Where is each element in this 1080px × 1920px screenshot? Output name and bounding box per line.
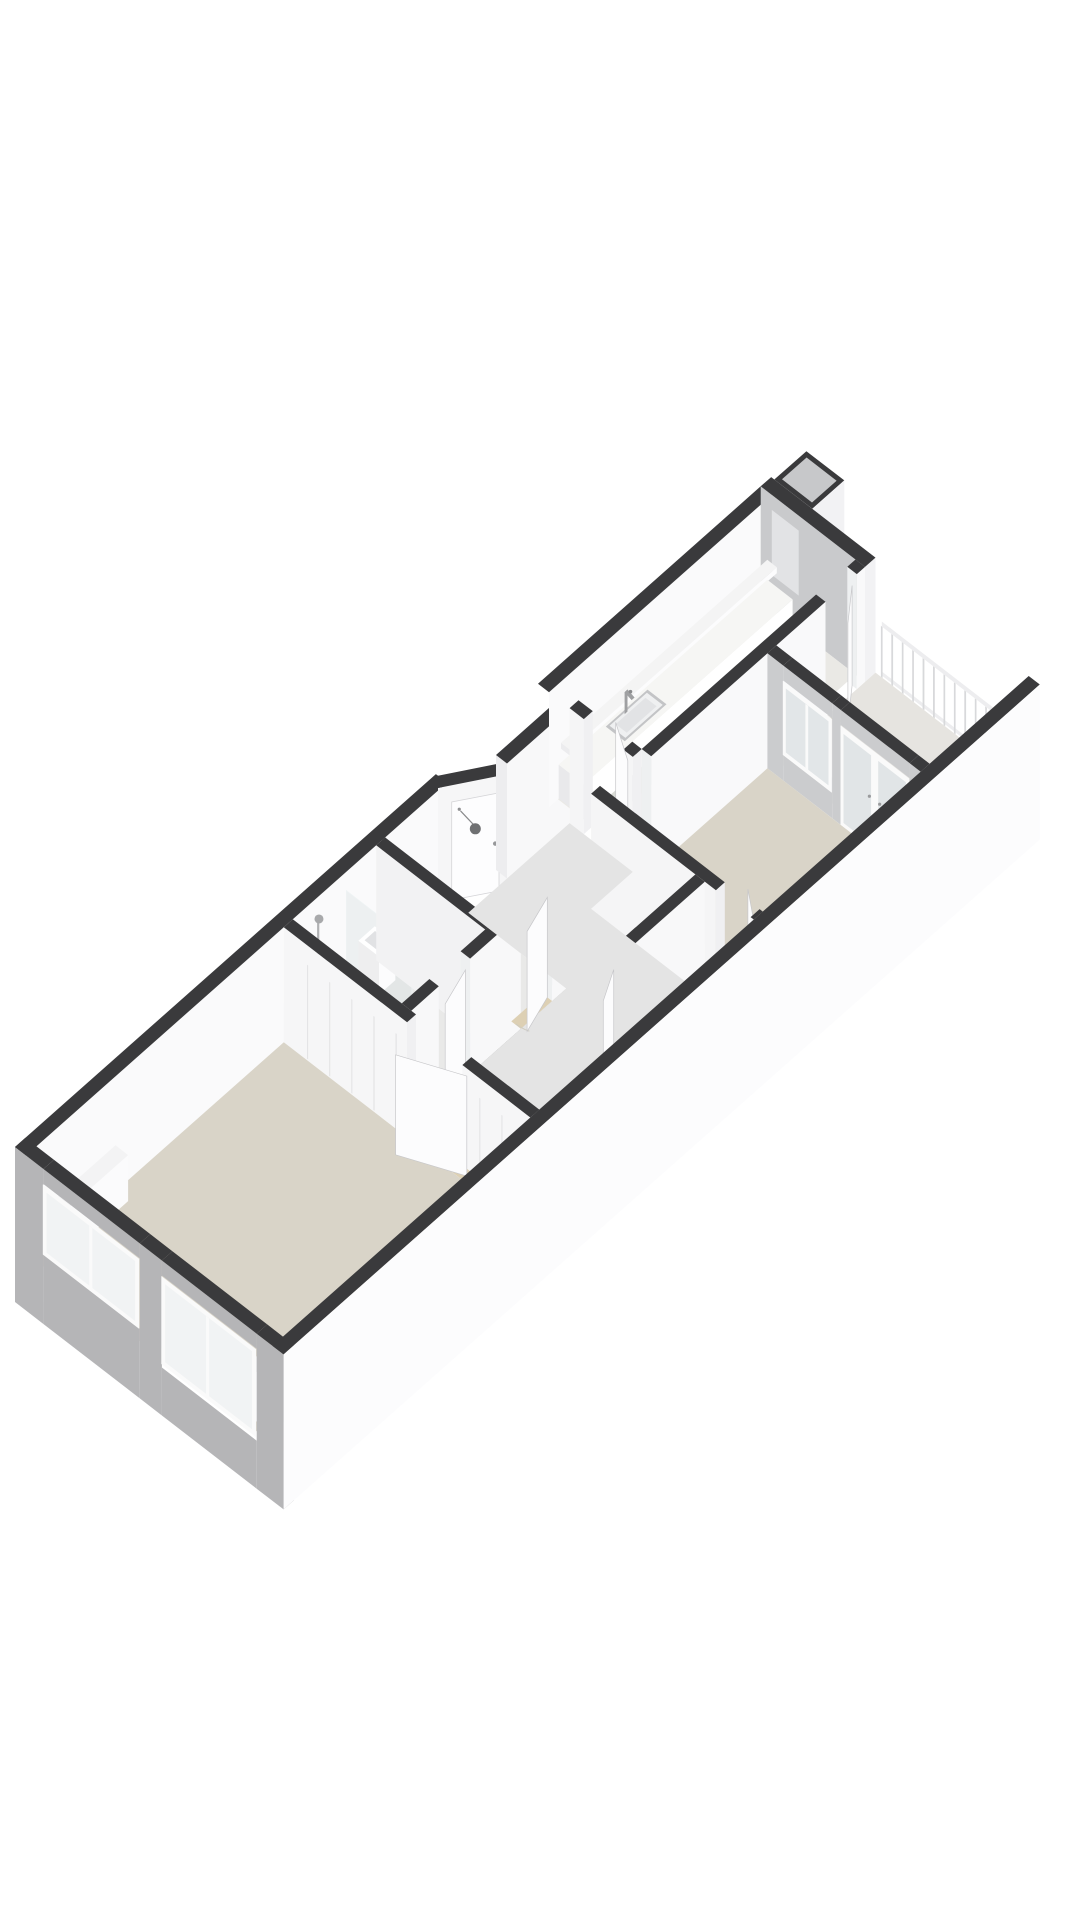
floorplan-page — [0, 0, 1080, 1920]
wall-lamp — [470, 823, 481, 834]
wall-lamp-dot — [458, 808, 461, 811]
front-window-1-mullion — [89, 1226, 92, 1289]
faucet-handle — [629, 690, 633, 694]
french-door-handle-left — [868, 795, 871, 798]
french-door-handle-right — [878, 803, 881, 806]
bedroom-window-mullion — [805, 704, 808, 770]
floorplan-3d-view — [0, 0, 1080, 1920]
closet-seam-1 — [307, 965, 308, 1060]
closet-seam-3 — [351, 999, 352, 1094]
living-room-door — [396, 1055, 467, 1176]
front-window-2-mullion — [206, 1316, 209, 1397]
kitchen-sw-wall-a — [570, 700, 593, 834]
shower-head — [314, 914, 323, 923]
closet-seam-4 — [374, 1016, 375, 1111]
closet-seam-2 — [329, 982, 330, 1077]
